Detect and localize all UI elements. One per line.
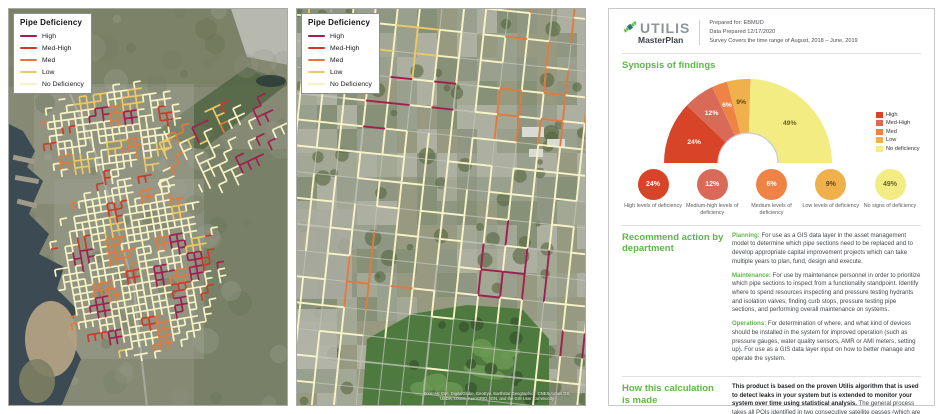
recommend-paragraph: Planning: For use as a GIS data layer in… bbox=[732, 232, 921, 267]
legend-swatch bbox=[308, 47, 325, 50]
stat-circle-label: Medium levels of deficiency bbox=[743, 203, 801, 217]
legend-item: No Deficiency bbox=[308, 78, 372, 90]
legend-item: High bbox=[308, 30, 372, 42]
paragraph-lead: Planning: bbox=[732, 232, 760, 239]
stat-item: 6%Medium levels of deficiency bbox=[743, 169, 801, 217]
stat-circle-value: 24% bbox=[638, 169, 669, 200]
legend-item: High bbox=[20, 30, 84, 42]
legend-swatch bbox=[308, 83, 325, 86]
gauge-legend: HighMed-HighMedLowNo deficiency bbox=[876, 110, 920, 153]
gauge-legend-label: Med bbox=[886, 129, 897, 135]
svg-text:12%: 12% bbox=[705, 110, 719, 117]
synopsis-title: Synopsis of findings bbox=[622, 60, 921, 71]
map-legend: Pipe Deficiency HighMed-HighMedLowNo Def… bbox=[13, 13, 92, 94]
legend-swatch bbox=[20, 59, 37, 62]
report-header: UTILIS MasterPlan Prepared for: EBMUDDat… bbox=[622, 19, 921, 46]
gauge-legend-item: No deficiency bbox=[876, 145, 920, 154]
gauge-legend-swatch bbox=[876, 112, 883, 118]
divider bbox=[622, 53, 921, 54]
legend-item: Low bbox=[20, 66, 84, 78]
stat-circle-value: 9% bbox=[815, 169, 846, 200]
gauge-legend-swatch bbox=[876, 129, 883, 135]
svg-text:49%: 49% bbox=[783, 120, 797, 127]
stat-item: 24%High levels of deficiency bbox=[624, 169, 682, 217]
legend-label: Med-High bbox=[42, 45, 71, 52]
deficiency-gauge-chart: 24%12%6%9%49% bbox=[622, 73, 874, 167]
svg-text:9%: 9% bbox=[736, 99, 746, 106]
divider bbox=[622, 376, 921, 377]
stat-item: 12%Medium-high levels of deficiency bbox=[683, 169, 741, 217]
gauge-legend-label: Low bbox=[886, 137, 896, 143]
legend-item: Low bbox=[308, 66, 372, 78]
recommend-section: Recommend action by department Planning:… bbox=[622, 232, 921, 369]
legend-label: Med-High bbox=[330, 45, 359, 52]
meta-line: Data Prepared 12/17/2020 bbox=[709, 28, 857, 37]
svg-text:6%: 6% bbox=[722, 102, 732, 109]
stat-circle-label: Low levels of deficiency bbox=[802, 203, 859, 210]
legend-item: Med-High bbox=[20, 42, 84, 54]
legend-label: No Deficiency bbox=[330, 81, 372, 88]
legend-items: HighMed-HighMedLowNo Deficiency bbox=[20, 30, 84, 90]
map-overview[interactable]: Pipe Deficiency HighMed-HighMedLowNo Def… bbox=[8, 8, 288, 406]
legend-label: Med bbox=[42, 57, 55, 64]
stat-circle-label: Medium-high levels of deficiency bbox=[683, 203, 741, 217]
gauge-area: 24%12%6%9%49% HighMed-HighMedLowNo defic… bbox=[622, 73, 921, 167]
how-title: How this calculation is made bbox=[622, 383, 724, 406]
legend-title: Pipe Deficiency bbox=[308, 18, 372, 27]
recommend-title: Recommend action by department bbox=[622, 232, 724, 255]
map-detail[interactable]: Pipe Deficiency HighMed-HighMedLowNo Def… bbox=[296, 8, 586, 406]
paragraph-lead: Operations: bbox=[732, 320, 766, 327]
legend-item: No Deficiency bbox=[20, 78, 84, 90]
gauge-legend-item: High bbox=[876, 110, 920, 119]
stat-circle-value: 49% bbox=[875, 169, 906, 200]
legend-label: Med bbox=[330, 57, 343, 64]
how-section: How this calculation is made This produc… bbox=[622, 383, 921, 414]
legend-swatch bbox=[20, 35, 37, 38]
legend-label: Low bbox=[42, 69, 54, 76]
gauge-legend-label: High bbox=[886, 112, 898, 118]
legend-swatch bbox=[308, 71, 325, 74]
recommend-paragraphs: Planning: For use as a GIS data layer in… bbox=[732, 232, 921, 369]
legend-swatch bbox=[308, 35, 325, 38]
legend-items: HighMed-HighMedLowNo Deficiency bbox=[308, 30, 372, 90]
legend-label: High bbox=[330, 33, 344, 40]
meta-line: Prepared for: EBMUD bbox=[709, 19, 857, 28]
paragraph-lead: Maintenance: bbox=[732, 272, 771, 279]
recommend-paragraph: Maintenance: For use by maintenance pers… bbox=[732, 272, 921, 315]
stat-circle-value: 12% bbox=[697, 169, 728, 200]
legend-swatch bbox=[20, 47, 37, 50]
legend-swatch bbox=[20, 71, 37, 74]
gauge-legend-item: Med-High bbox=[876, 119, 920, 128]
legend-title: Pipe Deficiency bbox=[20, 18, 84, 27]
gauge-legend-swatch bbox=[876, 146, 883, 152]
legend-item: Med bbox=[20, 54, 84, 66]
map-legend: Pipe Deficiency HighMed-HighMedLowNo Def… bbox=[301, 13, 380, 94]
divider bbox=[622, 225, 921, 226]
gauge-legend-swatch bbox=[876, 137, 883, 143]
stat-circle-label: High levels of deficiency bbox=[624, 203, 682, 210]
legend-label: Low bbox=[330, 69, 342, 76]
gauge-legend-label: Med-High bbox=[886, 120, 910, 126]
stat-circle-value: 6% bbox=[756, 169, 787, 200]
gauge-legend-item: Low bbox=[876, 136, 920, 145]
how-text: This product is based on the proven Util… bbox=[732, 383, 921, 414]
legend-item: Med-High bbox=[308, 42, 372, 54]
legend-swatch bbox=[308, 59, 325, 62]
report-meta: Prepared for: EBMUDData Prepared 12/17/2… bbox=[700, 19, 857, 46]
stat-item: 49%No signs of deficiency bbox=[861, 169, 919, 217]
legend-label: No Deficiency bbox=[42, 81, 84, 88]
utilis-logo: UTILIS MasterPlan bbox=[622, 20, 700, 45]
meta-line: Survey Covers the time range of August, … bbox=[709, 37, 857, 46]
gauge-legend-item: Med bbox=[876, 127, 920, 136]
satellite-icon bbox=[622, 20, 638, 34]
stat-circle-label: No signs of deficiency bbox=[864, 203, 916, 210]
brand-name: UTILIS bbox=[640, 20, 690, 36]
legend-label: High bbox=[42, 33, 56, 40]
gauge-legend-swatch bbox=[876, 120, 883, 126]
recommend-paragraph: Operations: For determination of where, … bbox=[732, 320, 921, 363]
utilis-masterplan-dashboard: Pipe Deficiency HighMed-HighMedLowNo Def… bbox=[0, 0, 940, 414]
map-attribution: Sources: Esri, DigitalGlobe, GeoEye, Ear… bbox=[417, 391, 577, 402]
stat-item: 9%Low levels of deficiency bbox=[802, 169, 860, 217]
svg-text:24%: 24% bbox=[687, 139, 701, 146]
product-name: MasterPlan bbox=[638, 35, 683, 45]
legend-swatch bbox=[20, 83, 37, 86]
report-panel: UTILIS MasterPlan Prepared for: EBMUDDat… bbox=[608, 8, 935, 406]
stat-circles: 24%High levels of deficiency12%Medium-hi… bbox=[622, 169, 921, 217]
legend-item: Med bbox=[308, 54, 372, 66]
gauge-legend-label: No deficiency bbox=[886, 146, 920, 152]
